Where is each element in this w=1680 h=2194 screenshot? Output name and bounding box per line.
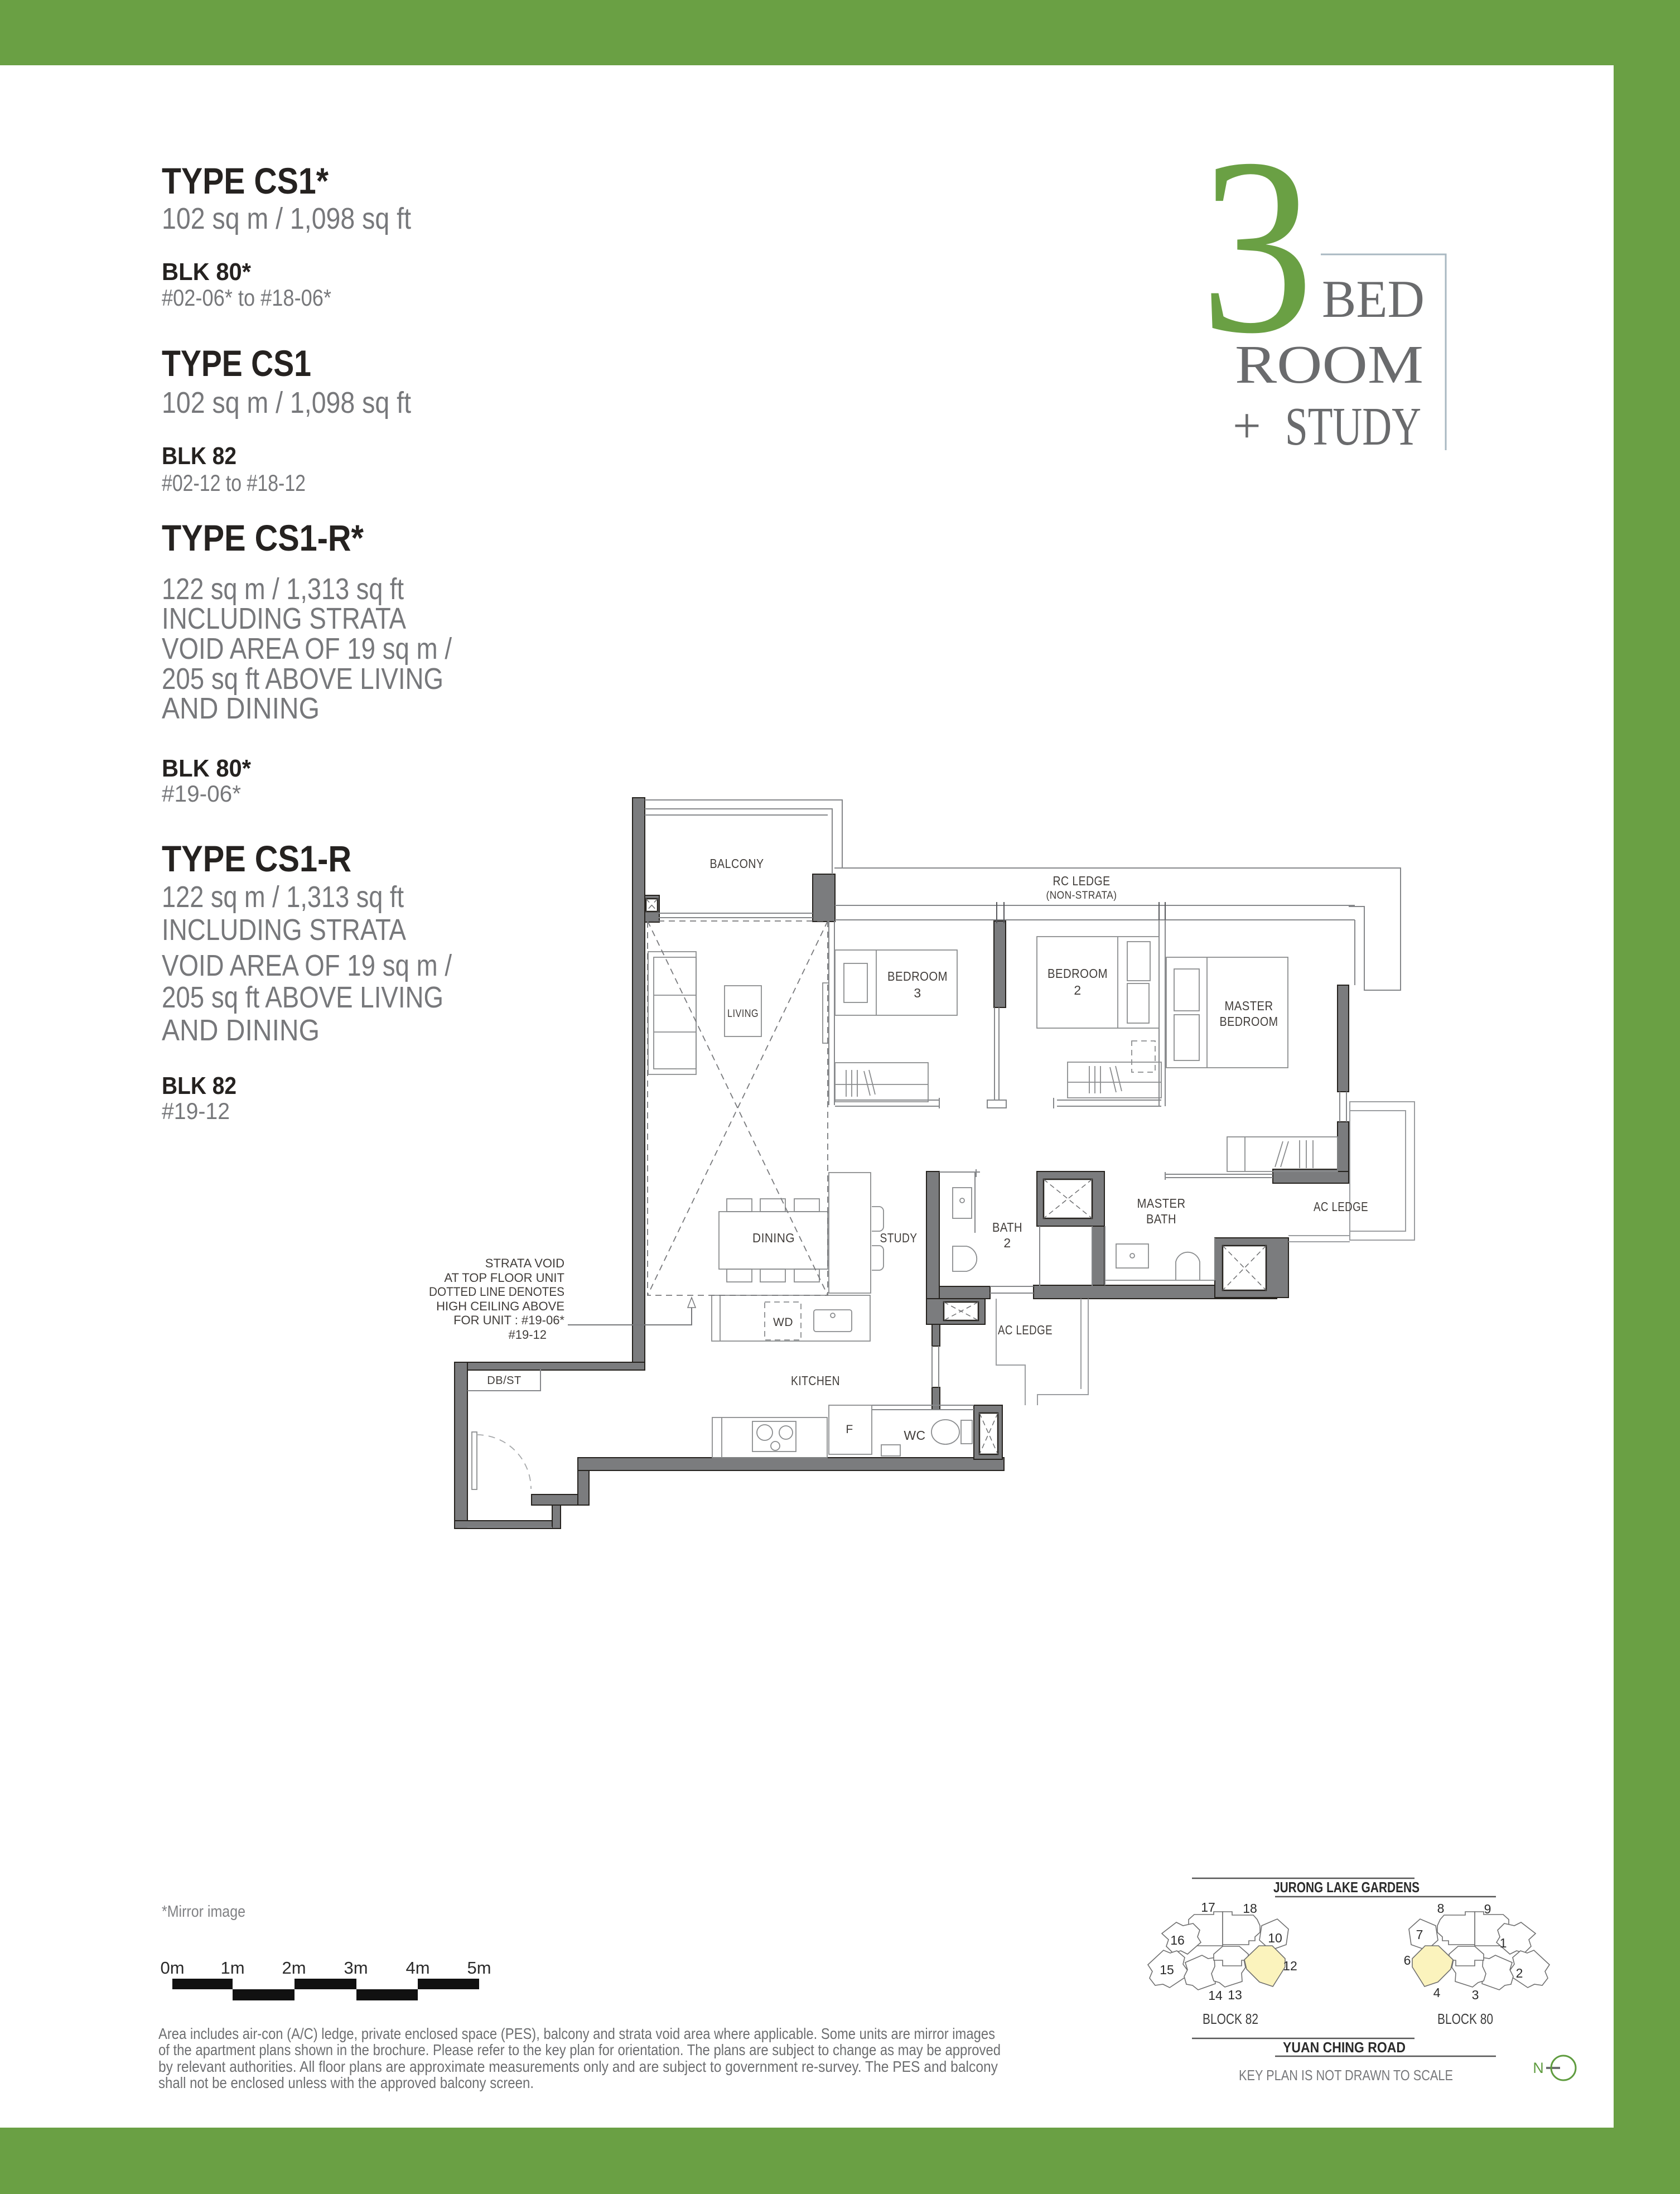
svg-text:TYPE CS1-R: TYPE CS1-R (162, 838, 351, 879)
svg-text:TYPE CS1-R*: TYPE CS1-R* (162, 517, 364, 558)
svg-text:205 sq ft ABOVE LIVING: 205 sq ft ABOVE LIVING (162, 662, 443, 696)
svg-text:2m: 2m (282, 1958, 306, 1978)
svg-text:JURONG LAKE GARDENS: JURONG LAKE GARDENS (1273, 1879, 1420, 1896)
svg-text:FOR UNIT : #19-06*: FOR UNIT : #19-06* (453, 1313, 564, 1327)
svg-text:0m: 0m (160, 1958, 184, 1978)
svg-text:MASTER: MASTER (1137, 1196, 1186, 1211)
svg-text:BED: BED (1322, 269, 1425, 329)
svg-text:3: 3 (914, 986, 921, 1000)
svg-text:AC LEDGE: AC LEDGE (1314, 1199, 1368, 1214)
svg-text:STUDY: STUDY (1285, 397, 1421, 457)
svg-text:BEDROOM: BEDROOM (1220, 1014, 1278, 1029)
svg-text:102 sq m / 1,098 sq ft: 102 sq m / 1,098 sq ft (162, 202, 411, 235)
svg-text:1m: 1m (220, 1958, 244, 1978)
svg-text:Area includes air-con (A/C) le: Area includes air-con (A/C) ledge, priva… (158, 2025, 995, 2042)
svg-text:#19-12: #19-12 (508, 1328, 547, 1342)
svg-text:4m: 4m (405, 1958, 429, 1978)
svg-text:BLK 80*: BLK 80* (162, 258, 252, 286)
svg-text:by relevant authorities. All f: by relevant authorities. All floor plans… (158, 2058, 998, 2075)
svg-text:shall not be enclosed unless w: shall not be enclosed unless with the ap… (158, 2074, 534, 2091)
svg-text:#02-06* to #18-06*: #02-06* to #18-06* (162, 285, 331, 311)
svg-text:205 sq ft ABOVE LIVING: 205 sq ft ABOVE LIVING (162, 981, 443, 1014)
svg-text:DB/ST: DB/ST (487, 1375, 521, 1387)
svg-text:STUDY: STUDY (880, 1231, 918, 1245)
svg-text:5m: 5m (467, 1958, 491, 1978)
svg-text:#19-06*: #19-06* (162, 780, 241, 807)
svg-text:AC LEDGE: AC LEDGE (998, 1323, 1053, 1337)
svg-text:10: 10 (1268, 1931, 1282, 1945)
svg-text:*Mirror image: *Mirror image (162, 1903, 245, 1921)
svg-text:DOTTED LINE DENOTES: DOTTED LINE DENOTES (429, 1285, 564, 1299)
svg-text:3: 3 (1472, 1988, 1479, 2002)
svg-text:KITCHEN: KITCHEN (791, 1373, 840, 1388)
svg-text:3m: 3m (344, 1958, 368, 1978)
svg-text:LIVING: LIVING (727, 1008, 759, 1020)
svg-text:ROOM: ROOM (1235, 335, 1423, 395)
svg-text:17: 17 (1201, 1900, 1215, 1915)
svg-text:STRATA VOID: STRATA VOID (485, 1256, 564, 1270)
svg-text:INCLUDING STRATA: INCLUDING STRATA (162, 602, 406, 635)
svg-text:BLOCK 80: BLOCK 80 (1437, 2010, 1493, 2027)
svg-text:13: 13 (1228, 1988, 1242, 2002)
svg-text:2: 2 (1516, 1966, 1523, 1980)
svg-text:BLOCK 82: BLOCK 82 (1203, 2010, 1258, 2027)
svg-text:BLK 82: BLK 82 (162, 1072, 236, 1100)
svg-text:2: 2 (1003, 1236, 1011, 1250)
svg-text:14: 14 (1208, 1988, 1223, 2003)
svg-text:4: 4 (1433, 1985, 1441, 2000)
svg-text:1: 1 (1500, 1936, 1507, 1950)
svg-text:16: 16 (1170, 1933, 1185, 1947)
svg-text:WC: WC (904, 1428, 925, 1443)
svg-text:#02-12 to #18-12: #02-12 to #18-12 (162, 470, 306, 496)
svg-text:BEDROOM: BEDROOM (887, 969, 948, 983)
svg-text:18: 18 (1243, 1901, 1257, 1916)
svg-text:MASTER: MASTER (1225, 999, 1273, 1013)
svg-text:6: 6 (1404, 1953, 1411, 1968)
svg-text:#19-12: #19-12 (162, 1098, 230, 1124)
svg-text:7: 7 (1416, 1927, 1423, 1942)
svg-text:N: N (1533, 2060, 1544, 2076)
svg-text:BEDROOM: BEDROOM (1047, 966, 1108, 981)
svg-text:F: F (846, 1423, 853, 1436)
svg-text:AND DINING: AND DINING (162, 692, 320, 725)
svg-text:15: 15 (1160, 1962, 1174, 1977)
svg-text:DINING: DINING (752, 1231, 795, 1245)
svg-text:2: 2 (1074, 983, 1081, 997)
svg-text:9: 9 (1484, 1902, 1491, 1916)
svg-text:122 sq m / 1,313 sq ft: 122 sq m / 1,313 sq ft (162, 880, 404, 914)
svg-text:BATH: BATH (1146, 1212, 1176, 1226)
svg-text:102 sq m / 1,098 sq ft: 102 sq m / 1,098 sq ft (162, 386, 411, 419)
svg-text:HIGH CEILING ABOVE: HIGH CEILING ABOVE (436, 1299, 564, 1313)
svg-text:RC LEDGE: RC LEDGE (1053, 874, 1111, 888)
svg-text:+: + (1233, 398, 1261, 454)
svg-text:TYPE CS1: TYPE CS1 (162, 343, 311, 384)
svg-text:AND DINING: AND DINING (162, 1014, 320, 1047)
svg-text:AT TOP FLOOR UNIT: AT TOP FLOOR UNIT (444, 1271, 564, 1285)
svg-text:12: 12 (1283, 1959, 1297, 1973)
svg-text:INCLUDING STRATA: INCLUDING STRATA (162, 913, 406, 947)
svg-text:WD: WD (773, 1316, 793, 1329)
svg-text:BALCONY: BALCONY (710, 856, 764, 871)
svg-text:BLK 80*: BLK 80* (162, 755, 252, 782)
svg-text:of the apartment plans shown i: of the apartment plans shown in the broc… (158, 2041, 1001, 2058)
svg-text:KEY PLAN IS NOT DRAWN TO SCALE: KEY PLAN IS NOT DRAWN TO SCALE (1239, 2067, 1453, 2084)
svg-text:BLK 82: BLK 82 (162, 442, 236, 470)
svg-text:VOID AREA OF 19 sq m /: VOID AREA OF 19 sq m / (162, 632, 452, 666)
svg-text:TYPE CS1*: TYPE CS1* (162, 160, 329, 201)
svg-text:122 sq m / 1,313 sq ft: 122 sq m / 1,313 sq ft (162, 572, 404, 606)
svg-text:BATH: BATH (992, 1220, 1022, 1235)
svg-text:VOID AREA OF 19 sq m /: VOID AREA OF 19 sq m / (162, 949, 452, 982)
svg-text:YUAN CHING ROAD: YUAN CHING ROAD (1283, 2039, 1406, 2056)
svg-text:8: 8 (1437, 1901, 1445, 1916)
svg-text:(NON-STRATA): (NON-STRATA) (1046, 890, 1117, 901)
